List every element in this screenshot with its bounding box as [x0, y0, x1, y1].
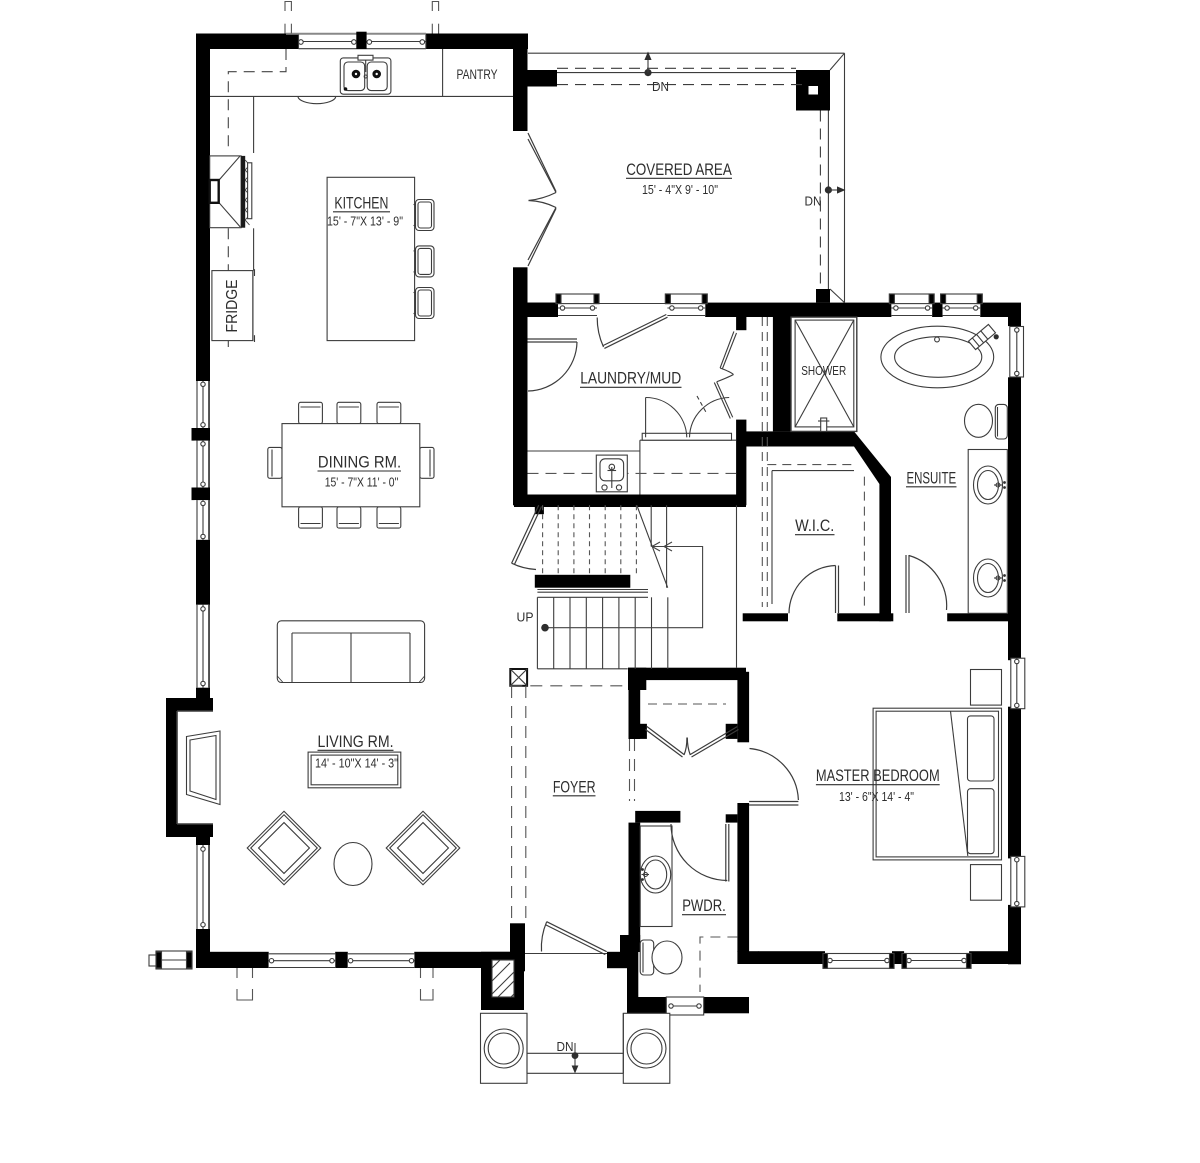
svg-text:DN: DN [805, 195, 822, 209]
svg-text:COVERED AREA: COVERED AREA [626, 161, 732, 179]
svg-text:15' - 4"X 9' - 10": 15' - 4"X 9' - 10" [642, 182, 718, 197]
svg-text:FRIDGE: FRIDGE [224, 280, 241, 333]
svg-text:PWDR.: PWDR. [682, 897, 726, 915]
svg-text:DN: DN [557, 1040, 574, 1054]
svg-text:14' - 10"X 14' - 3": 14' - 10"X 14' - 3" [315, 755, 398, 770]
svg-text:DN: DN [652, 80, 669, 94]
svg-text:13' - 6"X 14' - 4": 13' - 6"X 14' - 4" [839, 789, 914, 804]
svg-text:MASTER BEDROOM: MASTER BEDROOM [816, 767, 940, 785]
svg-text:15' - 7"X 13' - 9": 15' - 7"X 13' - 9" [327, 213, 403, 228]
svg-text:UP: UP [517, 611, 534, 625]
svg-text:DINING RM.: DINING RM. [318, 454, 401, 472]
svg-text:SHOWER: SHOWER [801, 364, 846, 378]
svg-text:FOYER: FOYER [553, 778, 596, 796]
svg-text:ENSUITE: ENSUITE [906, 469, 956, 487]
svg-text:LAUNDRY/MUD: LAUNDRY/MUD [580, 370, 681, 388]
svg-text:PANTRY: PANTRY [457, 67, 498, 82]
svg-text:W.I.C.: W.I.C. [795, 517, 834, 535]
svg-text:15' - 7"X 11' - 0": 15' - 7"X 11' - 0" [325, 475, 399, 490]
svg-text:KITCHEN: KITCHEN [334, 195, 388, 213]
svg-text:LIVING RM.: LIVING RM. [318, 733, 394, 751]
